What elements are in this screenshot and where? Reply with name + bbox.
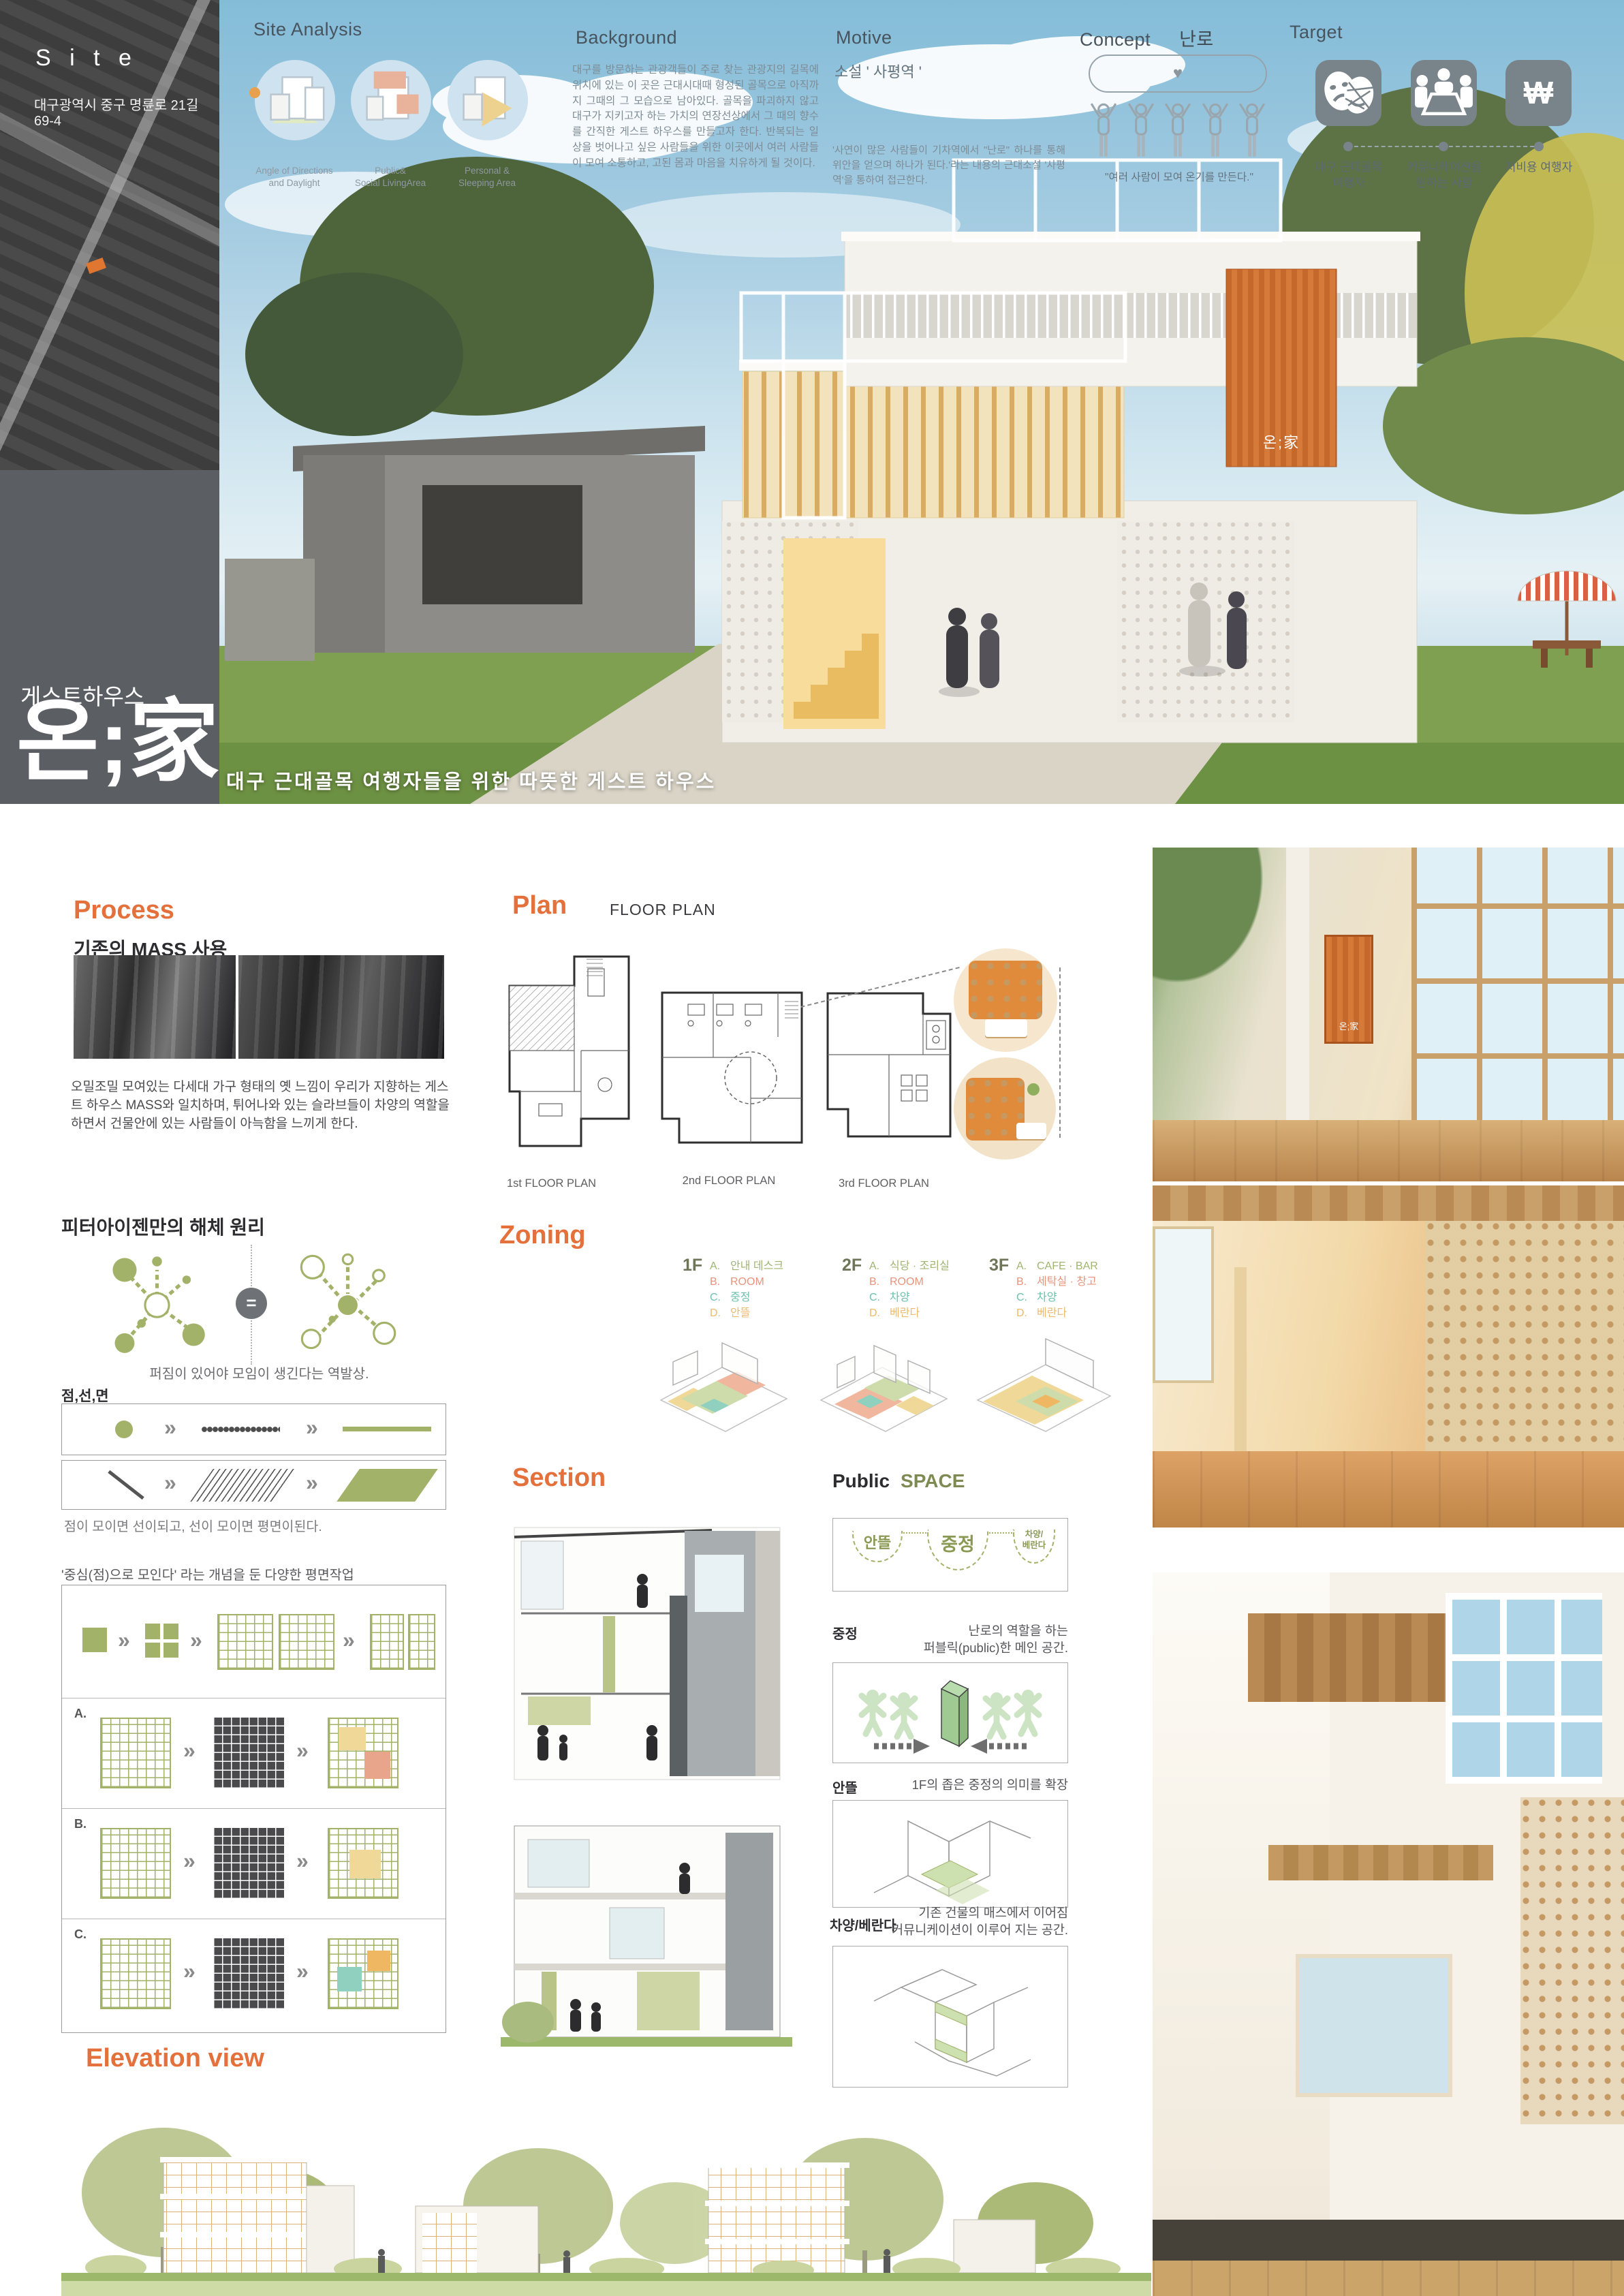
- person-raised-arms-icon: [1126, 101, 1156, 159]
- chevron-icon: »: [164, 1470, 176, 1495]
- scatter-diagram-hollow: [298, 1250, 397, 1356]
- background-body: 대구를 방문하는 관광객들이 주로 찾는 관광지의 길목에 위치에 있는 이 곳…: [572, 63, 819, 171]
- connector-dot: [1439, 142, 1448, 151]
- target-label-3: 저비용 여행자: [1487, 160, 1591, 176]
- row-label: C.: [74, 1927, 87, 1942]
- render-interior-3: [1153, 1572, 1624, 2296]
- hatched-lines-icon: [190, 1469, 295, 1502]
- study-plan-outline: [100, 1938, 171, 2009]
- entry-yard-desc: 1F의 좁은 중정의 의미를 확장: [886, 1777, 1068, 1794]
- section-title: Section: [512, 1463, 606, 1493]
- study-plan-dark: [213, 1828, 284, 1899]
- title-hanja: 家: [129, 689, 219, 794]
- meeting-table-icon: [1411, 60, 1477, 126]
- arc-connector: [987, 1532, 1014, 1534]
- chevron-icon: »: [296, 1959, 309, 1984]
- section-drawing-1: [501, 1514, 792, 1786]
- elevation-title: Elevation view: [86, 2044, 264, 2073]
- room-callout-render-2: [954, 1057, 1056, 1160]
- plan-studies-caption: '중심(점)으로 모인다' 라는 개념을 둔 다양한 평면작업: [61, 1564, 354, 1583]
- public-space-diagram: 안뜰 중정 차양/ 베란다: [832, 1518, 1068, 1592]
- motive-body: '사연이 많은 사람들이 기차역에서 "난로" 하나를 통해 위안을 얻으며 하…: [832, 143, 1065, 187]
- person-raised-arms-icon: [1089, 101, 1119, 159]
- floor-plan-label-1: 1st FLOOR PLAN: [495, 1177, 608, 1190]
- solid-square-icon: [82, 1628, 107, 1652]
- study-plan-colored: [328, 1938, 399, 2009]
- room-callout-render-1: [954, 948, 1057, 1052]
- won-currency-icon: ₩: [1524, 75, 1553, 110]
- point-to-line-row: » »: [61, 1403, 446, 1455]
- equals-badge: =: [236, 1288, 267, 1319]
- target-icon-budget: ₩: [1505, 60, 1572, 126]
- grid-plan-thumb: [279, 1614, 334, 1670]
- floor-plan-label-2: 2nd FLOOR PLAN: [671, 1175, 787, 1188]
- entry-awning-desc: 기존 건물의 매스에서 이어짐 커뮤니케이션이 이루어 지는 공간.: [886, 1905, 1068, 1939]
- plan-studies-box: » » » A. » » B.: [61, 1585, 446, 2033]
- dotted-line-icon: [202, 1426, 280, 1433]
- motive-subtitle: 소설 ' 사평역 ': [834, 60, 922, 82]
- render-interior-1: 온;家: [1153, 848, 1624, 1181]
- analysis-label-daylight: Angle of Directions and Daylight: [243, 165, 345, 189]
- connector-dot: [1343, 142, 1353, 151]
- arc-yard: 안뜰: [852, 1531, 903, 1562]
- grid-plan-thumb: [408, 1614, 435, 1670]
- target-label-1: 대구 근대골목 여행자: [1297, 160, 1401, 191]
- chevron-icon: »: [296, 1738, 309, 1763]
- person-raised-arms-icon: [1200, 101, 1230, 159]
- plp-caption: 점이 모이면 선이되고, 선이 모이면 평면이된다.: [64, 1515, 322, 1535]
- eisenman-diagram: =: [74, 1250, 445, 1359]
- site-label: S i t e: [35, 45, 138, 72]
- connector-dot: [1534, 142, 1544, 151]
- awning-diagram: [832, 1946, 1068, 2088]
- render-interior-2: [1153, 1185, 1624, 1527]
- person-raised-arms-icon: [1237, 101, 1267, 159]
- analysis-label-public: Public& Social LivingArea: [339, 165, 441, 189]
- section-drawing-2: [501, 1805, 792, 2086]
- row-label: A.: [74, 1707, 87, 1721]
- grid-plan-thumb: [217, 1614, 273, 1670]
- zoning-axon-2f: [794, 1325, 964, 1448]
- eisenman-caption: 퍼짐이 있어야 모임이 생긴다는 역발상.: [74, 1363, 445, 1382]
- plan-title: Plan: [512, 891, 567, 920]
- courtyard-diagram: [832, 1662, 1068, 1763]
- study-plan-colored: [328, 1718, 399, 1788]
- person-raised-arms-icon: [1163, 101, 1193, 159]
- zoning-list-1f: A.안내 데스크 B.ROOM C.중정 D.안뜰: [710, 1258, 783, 1321]
- study-plan-colored: [328, 1828, 399, 1899]
- study-row-b: B. » »: [62, 1809, 446, 1919]
- plan-subtitle: FLOOR PLAN: [610, 901, 716, 919]
- gathering-diagram: [833, 1663, 1067, 1763]
- concept-people-row: [1089, 101, 1267, 159]
- study-row-c: C. » »: [62, 1919, 446, 2032]
- study-plan-outline: [100, 1718, 171, 1788]
- floor-plan-1: [499, 948, 639, 1154]
- chevron-icon: »: [190, 1628, 202, 1653]
- zoning-list-2f: A.식당 · 조리실 B.ROOM C.차양 D.베란다: [869, 1258, 950, 1321]
- personal-area-diagram: [448, 60, 528, 140]
- arc-courtyard: 중정: [927, 1530, 988, 1570]
- site-analysis-title: Site Analysis: [253, 19, 362, 40]
- floor-plan-label-3: 3rd FLOOR PLAN: [828, 1177, 940, 1190]
- public-area-diagram-icon: [351, 60, 431, 140]
- entry-courtyard-label: 중정: [832, 1623, 858, 1643]
- line-icon: [108, 1470, 144, 1500]
- chevron-icon: »: [183, 1738, 196, 1763]
- public-space-title: PublicSPACE: [832, 1470, 965, 1492]
- chevron-icon: »: [306, 1415, 318, 1440]
- daylight-diagram-icon: [255, 60, 335, 140]
- study-row-a: A. » »: [62, 1698, 446, 1808]
- target-icon-meeting: [1411, 60, 1477, 126]
- yard-wireframe: [833, 1801, 1067, 1907]
- line-to-plane-row: » »: [61, 1460, 446, 1510]
- theater-masks-icon: [1315, 60, 1381, 126]
- public-area-diagram: [351, 60, 431, 140]
- chevron-icon: »: [343, 1628, 355, 1653]
- chevron-icon: »: [296, 1848, 309, 1874]
- mass-body: 오밀조밀 모여있는 다세대 가구 형태의 옛 느낌이 우리가 지향하는 게스트 …: [71, 1079, 450, 1134]
- personal-area-diagram-icon: [448, 60, 528, 140]
- chevron-icon: »: [118, 1628, 130, 1653]
- target-title: Target: [1290, 22, 1343, 43]
- row-label: B.: [74, 1817, 87, 1831]
- mass-photo-2: [238, 955, 444, 1059]
- heart-icon: ♥: [1173, 64, 1183, 82]
- study-plan-dark: [213, 1718, 284, 1788]
- site-panel: S i t e 대구광역시 중구 명륜로 21길 69-4 게스트하우스 온;家: [0, 0, 219, 804]
- building-signboard-text: 온;家: [1226, 431, 1337, 452]
- zoning-axon-3f: [950, 1325, 1131, 1448]
- study-row-squares: » » »: [62, 1585, 446, 1698]
- daylight-diagram: [255, 60, 335, 140]
- mass-photo-1: [74, 955, 236, 1059]
- chevron-icon: »: [306, 1470, 318, 1495]
- quad-square-icon: [145, 1624, 179, 1658]
- zoning-floor-3: 3F: [989, 1256, 1009, 1275]
- floor-plan-3: [821, 973, 957, 1145]
- point-icon: [115, 1421, 133, 1438]
- chevron-icon: »: [164, 1415, 176, 1440]
- arc-awning: 차양/ 베란다: [1013, 1530, 1055, 1564]
- study-plan-dark: [213, 1938, 284, 2009]
- concept-caption: "여러 사람이 모여 온기를 만든다.": [1083, 169, 1275, 184]
- chevron-icon: »: [183, 1959, 196, 1984]
- page-title: 온;家: [16, 695, 219, 790]
- zoning-title: Zoning: [499, 1221, 586, 1250]
- target-label-2: 커뮤니케이션을 원하는 사람: [1392, 160, 1496, 191]
- study-plan-outline: [100, 1828, 171, 1899]
- target-icon-masks: [1315, 60, 1381, 126]
- sun-dot-icon: [249, 87, 260, 98]
- eisenman-heading: 피터아이젠만의 해체 원리: [61, 1213, 265, 1240]
- callout-connector: [1059, 967, 1061, 1138]
- zoning-list-3f: A.CAFE · BAR B.세탁실 · 창고 C.차양 D.베란다: [1016, 1258, 1098, 1321]
- board-subtitle: 대구 근대골목 여행자들을 위한 따뜻한 게스트 하우스: [226, 766, 716, 794]
- render-signboard-text: 온;家: [1324, 1019, 1373, 1032]
- presentation-board: 온;家 대구 근대골목 여행자들을 위한 따뜻한 게스트 하우스 Site An…: [0, 0, 1624, 2296]
- awning-wireframe: [833, 1946, 1067, 2087]
- scatter-diagram-filled: [108, 1250, 206, 1356]
- chevron-icon: »: [183, 1848, 196, 1874]
- entry-yard-label: 안뜰: [832, 1777, 858, 1797]
- arc-connector: [901, 1532, 928, 1534]
- entry-courtyard-desc: 난로의 역할을 하는 퍼블릭(public)한 메인 공간.: [906, 1623, 1068, 1657]
- solid-line-icon: [343, 1427, 431, 1431]
- process-title: Process: [74, 896, 174, 925]
- elevation-drawing: [61, 2077, 1151, 2296]
- plane-icon: [337, 1469, 438, 1502]
- background-title: Background: [576, 27, 677, 48]
- zoning-floor-2: 2F: [842, 1256, 862, 1275]
- floor-plan-2: [649, 962, 812, 1156]
- concept-keyword: 난로: [1179, 29, 1214, 50]
- site-address: 대구광역시 중구 명륜로 21길 69-4: [34, 94, 219, 129]
- plp-heading: 점,선,면: [61, 1385, 109, 1406]
- grid-plan-thumb: [370, 1614, 404, 1670]
- analysis-label-personal: Personal & Sleeping Area: [436, 165, 538, 189]
- concept-title: Concept난로: [1080, 25, 1214, 51]
- zoning-floor-1: 1F: [683, 1256, 702, 1275]
- concept-speech-bubble: ♥: [1089, 55, 1267, 93]
- motive-title: Motive: [836, 27, 892, 48]
- zoning-axon-1f: [634, 1325, 804, 1448]
- yard-diagram: [832, 1800, 1068, 1908]
